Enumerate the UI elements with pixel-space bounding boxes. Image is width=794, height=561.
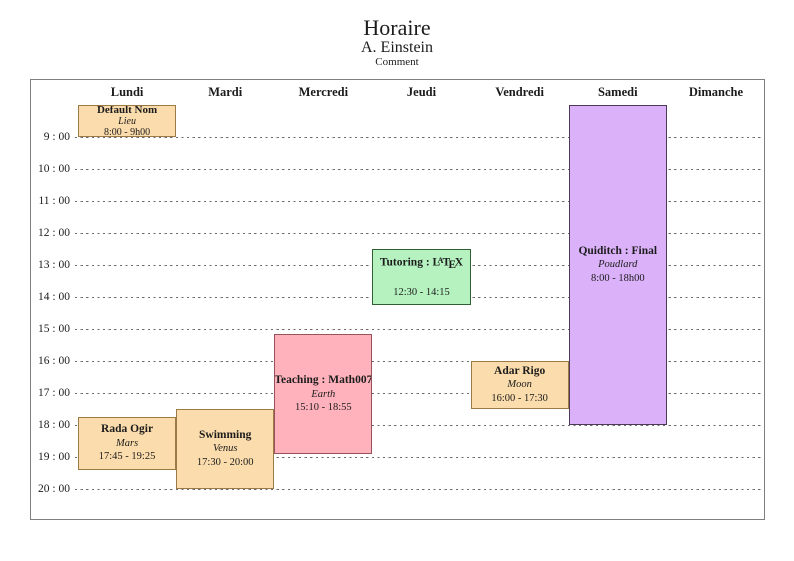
hour-label: 15 : 00 bbox=[30, 323, 70, 335]
hour-label: 20 : 00 bbox=[30, 483, 70, 495]
event-teaching-math007: Teaching : Math007Earth15:10 - 18:55 bbox=[274, 334, 372, 454]
latex-text: Tutoring : L bbox=[380, 257, 440, 269]
event-location: Venus bbox=[213, 442, 238, 456]
hour-label: 9 : 00 bbox=[30, 131, 70, 143]
event-rada-ogir: Rada OgirMars17:45 - 19:25 bbox=[78, 417, 176, 470]
event-adar-rigo: Adar RigoMoon16:00 - 17:30 bbox=[471, 361, 569, 409]
hour-gridline bbox=[75, 489, 764, 490]
event-title: Rada Ogir bbox=[101, 423, 153, 437]
event-location: Poudlard bbox=[598, 258, 637, 272]
event-time: 17:45 - 19:25 bbox=[99, 450, 156, 464]
day-header-dimanche: Dimanche bbox=[667, 85, 765, 99]
latex-text: X bbox=[455, 257, 463, 269]
hour-label: 11 : 00 bbox=[30, 195, 70, 207]
page-subtitle: A. Einstein bbox=[0, 39, 794, 56]
hour-label: 13 : 00 bbox=[30, 259, 70, 271]
hour-label: 17 : 00 bbox=[30, 387, 70, 399]
hour-label: 18 : 00 bbox=[30, 419, 70, 431]
timetable-page: Horaire A. Einstein Comment LundiMardiMe… bbox=[0, 0, 794, 561]
day-header-jeudi: Jeudi bbox=[372, 85, 470, 99]
day-header-mardi: Mardi bbox=[176, 85, 274, 99]
event-quiditch-final: Quiditch : FinalPoudlard8:00 - 18h00 bbox=[569, 105, 667, 425]
event-title: Default Nom bbox=[97, 105, 157, 116]
event-time: 8:00 - 18h00 bbox=[591, 272, 645, 286]
title-block: Horaire A. Einstein Comment bbox=[0, 16, 794, 69]
hour-label: 10 : 00 bbox=[30, 163, 70, 175]
event-location: Moon bbox=[507, 378, 532, 392]
event-title: Tutoring : LATEX bbox=[380, 254, 463, 272]
hour-label: 12 : 00 bbox=[30, 227, 70, 239]
event-time: 12:30 - 14:15 bbox=[393, 286, 450, 300]
event-title: Adar Rigo bbox=[494, 365, 545, 379]
hour-label: 14 : 00 bbox=[30, 291, 70, 303]
event-title: Quiditch : Final bbox=[578, 245, 657, 259]
day-header-lundi: Lundi bbox=[78, 85, 176, 99]
page-comment: Comment bbox=[0, 56, 794, 69]
hour-label: 16 : 00 bbox=[30, 355, 70, 367]
event-time: 16:00 - 17:30 bbox=[491, 392, 548, 406]
event-title: Swimming bbox=[199, 429, 251, 443]
day-header-samedi: Samedi bbox=[569, 85, 667, 99]
event-time: 15:10 - 18:55 bbox=[295, 401, 352, 415]
event-swimming: SwimmingVenus17:30 - 20:00 bbox=[176, 409, 274, 489]
page-title: Horaire bbox=[0, 16, 794, 39]
event-default-nom: Default NomLieu8:00 - 9h00 bbox=[78, 105, 176, 137]
event-title: Teaching : Math007 bbox=[274, 374, 372, 388]
event-location: Earth bbox=[311, 388, 335, 402]
day-header-vendredi: Vendredi bbox=[471, 85, 569, 99]
event-time: 17:30 - 20:00 bbox=[197, 456, 254, 470]
event-location: Lieu bbox=[118, 116, 136, 127]
event-tutoring-latex: Tutoring : LATEX12:30 - 14:15 bbox=[372, 249, 470, 305]
event-location: Mars bbox=[116, 437, 138, 451]
day-header-mercredi: Mercredi bbox=[274, 85, 372, 99]
hour-label: 19 : 00 bbox=[30, 451, 70, 463]
event-time: 8:00 - 9h00 bbox=[104, 127, 150, 138]
